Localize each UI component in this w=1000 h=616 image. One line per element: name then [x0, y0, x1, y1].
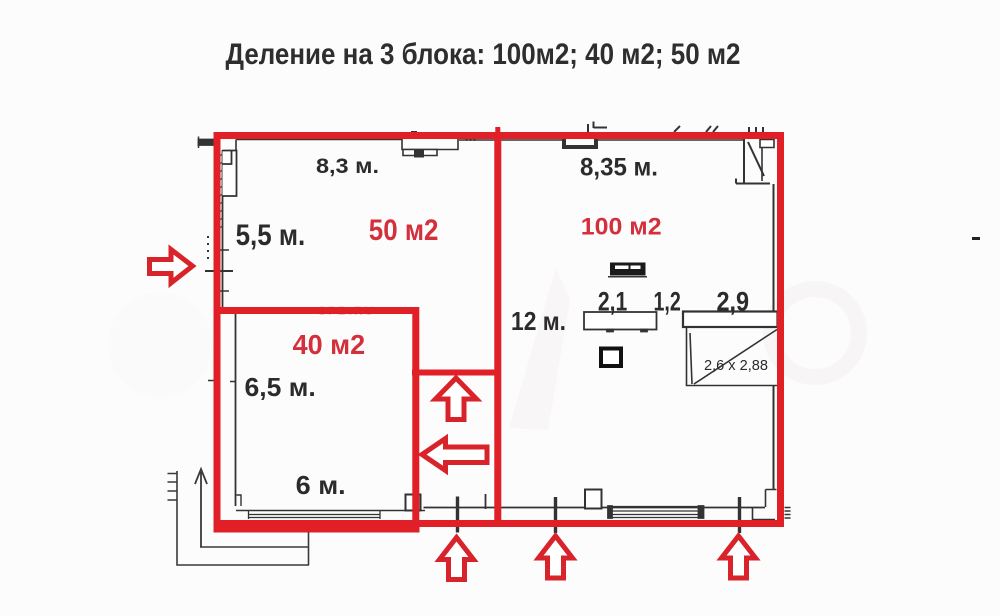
svg-text:40 м2: 40 м2: [293, 329, 366, 360]
svg-text:Деление на 3 блока: 100м2; 40: Деление на 3 блока: 100м2; 40 м2; 50 м2: [226, 38, 741, 71]
svg-text:50 м2: 50 м2: [369, 214, 439, 247]
svg-text:2,6 x 2,88: 2,6 x 2,88: [704, 358, 768, 374]
svg-text:6,5 м.: 6,5 м.: [245, 372, 316, 402]
svg-text:5,5 м.: 5,5 м.: [236, 219, 306, 252]
svg-text:2,9: 2,9: [717, 287, 750, 317]
svg-text:8,3 м.: 8,3 м.: [316, 154, 379, 178]
svg-text:100 м2: 100 м2: [581, 214, 662, 241]
svg-text:12 м.: 12 м.: [511, 306, 566, 336]
svg-text:1,2: 1,2: [654, 287, 681, 317]
svg-text:8,35 м.: 8,35 м.: [580, 154, 658, 182]
svg-text:2,1: 2,1: [598, 287, 627, 317]
svg-text:6 м.: 6 м.: [296, 470, 346, 500]
